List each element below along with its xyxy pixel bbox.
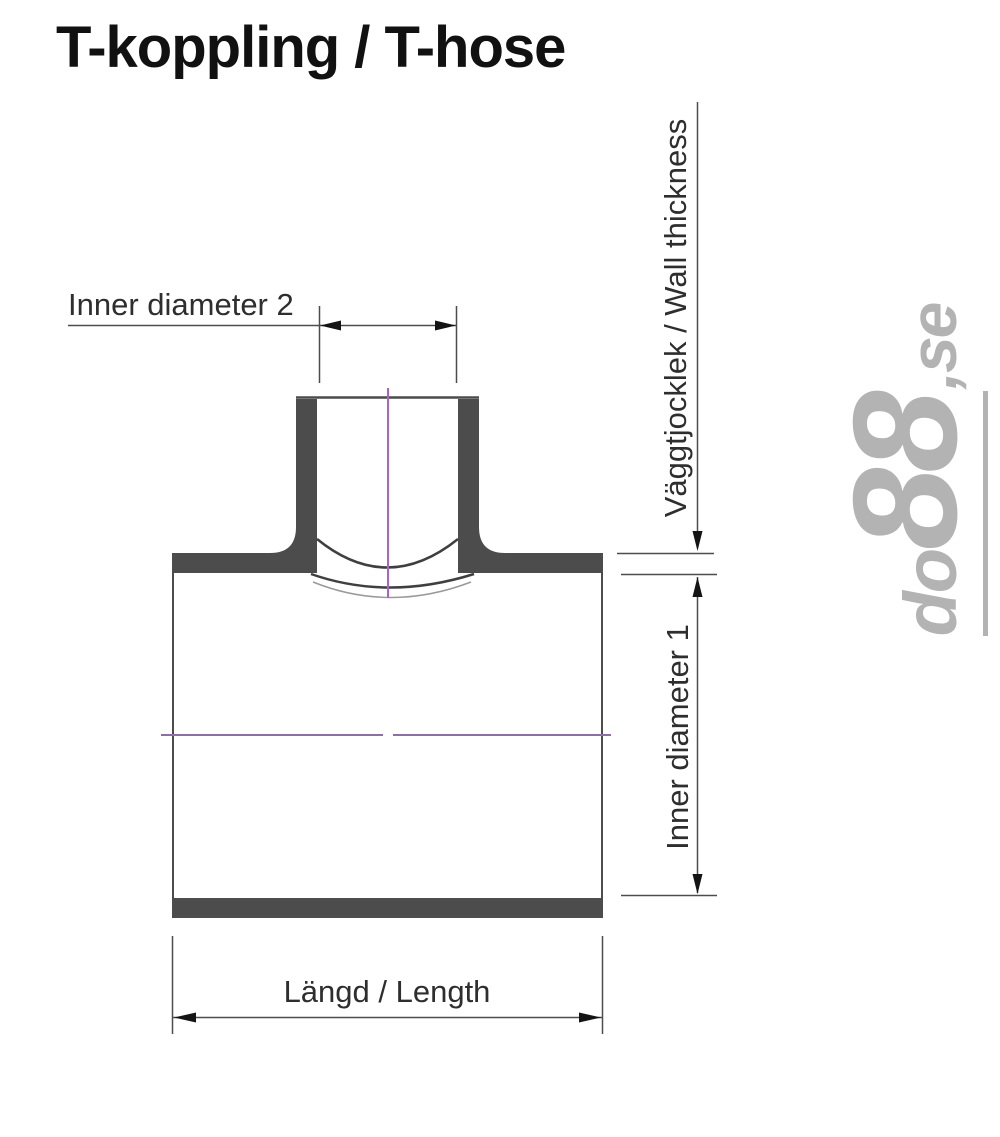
length-arrow-right bbox=[579, 1013, 601, 1023]
watermark-suffix: ,se bbox=[900, 304, 966, 392]
label-wall-thickness: Väggtjocklek / Wall thickness bbox=[658, 98, 694, 538]
saddle-arc-faint bbox=[313, 582, 471, 598]
branch-right-wall bbox=[458, 399, 603, 573]
wall-thickness-arrow-down bbox=[693, 531, 703, 551]
label-inner-diameter-2: Inner diameter 2 bbox=[68, 287, 294, 323]
technical-drawing-page: T-koppling / T-hose Inner diameter 2 Väg… bbox=[0, 0, 1000, 1137]
watermark-prefix: do bbox=[894, 550, 968, 636]
do88-watermark: do 88 ,se bbox=[832, 220, 982, 720]
branch-left-wall bbox=[172, 399, 317, 573]
id2-arrow-left bbox=[320, 321, 341, 331]
watermark-underlined-part: do 88 bbox=[832, 391, 988, 636]
label-length: Längd / Length bbox=[237, 974, 537, 1010]
saddle-arc-inner bbox=[311, 574, 474, 588]
id2-arrow-right bbox=[435, 321, 456, 331]
label-inner-diameter-1: Inner diameter 1 bbox=[660, 577, 696, 897]
page-title: T-koppling / T-hose bbox=[56, 14, 565, 81]
watermark-numbers: 88 bbox=[832, 395, 980, 550]
main-pipe-bottom-wall bbox=[172, 898, 603, 918]
length-arrow-left bbox=[174, 1013, 196, 1023]
